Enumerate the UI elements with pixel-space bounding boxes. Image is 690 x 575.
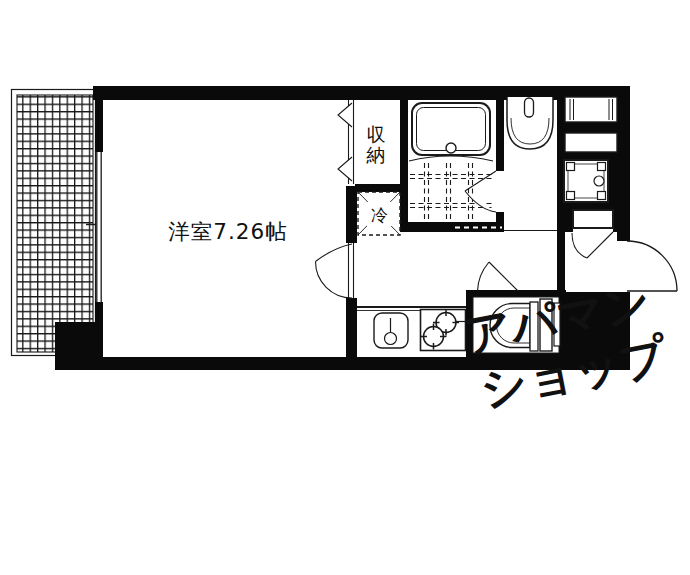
inner-doorway: [573, 210, 613, 228]
closet-label-char2: 納: [366, 144, 386, 166]
bathtub: [409, 103, 493, 161]
closet-label: 収 納: [366, 123, 386, 166]
washer-pan: [564, 160, 608, 202]
room-size-label: 洋室7.26帖: [168, 219, 287, 244]
stove: [421, 310, 466, 351]
refrigerator-label: 冷: [371, 205, 388, 225]
balcony: [12, 90, 96, 356]
floorplan-drawing: 冷: [0, 0, 690, 575]
basin-faucet: [525, 98, 534, 117]
closet-label-char1: 収: [367, 123, 386, 145]
storage-box-top: [565, 97, 617, 122]
kitchen-sink: [374, 313, 408, 348]
floorplan-page: 冷: [0, 0, 690, 575]
storage-box-lower: [565, 133, 617, 152]
